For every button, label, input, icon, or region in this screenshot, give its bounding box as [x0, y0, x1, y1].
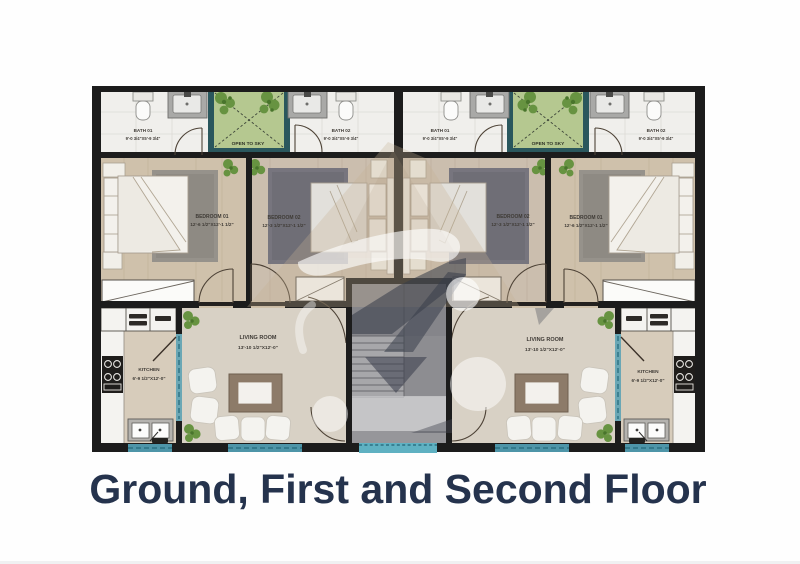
svg-text:BATH 02: BATH 02 [332, 128, 351, 133]
svg-text:6'-9 1/2"X12'-0": 6'-9 1/2"X12'-0" [631, 378, 664, 383]
svg-text:9'-0 3/4"X5'-9 3/4": 9'-0 3/4"X5'-9 3/4" [126, 136, 161, 141]
svg-text:OPEN TO SKY: OPEN TO SKY [532, 141, 565, 147]
svg-text:9'-0 3/4"X5'-9 3/4": 9'-0 3/4"X5'-9 3/4" [639, 136, 674, 141]
svg-text:LIVING ROOM: LIVING ROOM [240, 335, 277, 341]
svg-text:BATH 01: BATH 01 [134, 128, 153, 133]
svg-text:BEDROOM 01: BEDROOM 01 [569, 215, 602, 221]
svg-text:LIVING ROOM: LIVING ROOM [527, 337, 564, 343]
svg-text:12'-3 1/2"X12'-1 1/2": 12'-3 1/2"X12'-1 1/2" [491, 222, 534, 227]
svg-text:BEDROOM 02: BEDROOM 02 [267, 215, 300, 221]
svg-text:9'-0 3/4"X5'-9 3/4": 9'-0 3/4"X5'-9 3/4" [324, 136, 359, 141]
svg-text:6'-9 1/2"X12'-0": 6'-9 1/2"X12'-0" [132, 376, 165, 381]
svg-text:KITCHEN: KITCHEN [138, 367, 160, 373]
svg-text:13'-10 1/2"X12'-0": 13'-10 1/2"X12'-0" [525, 347, 565, 353]
svg-text:BEDROOM 01: BEDROOM 01 [195, 214, 228, 220]
svg-text:13'-10 1/2"X12'-0": 13'-10 1/2"X12'-0" [238, 345, 278, 351]
svg-text:12'-6 1/2"X12'-1 1/2": 12'-6 1/2"X12'-1 1/2" [190, 222, 233, 227]
svg-text:BEDROOM 02: BEDROOM 02 [496, 214, 529, 220]
svg-text:12'-6 1/2"X12'-1 1/2": 12'-6 1/2"X12'-1 1/2" [564, 223, 607, 228]
svg-text:KITCHEN: KITCHEN [637, 369, 659, 375]
svg-text:BATH 02: BATH 02 [647, 128, 666, 133]
svg-text:9'-0 3/4"X5'-9 3/4": 9'-0 3/4"X5'-9 3/4" [423, 136, 458, 141]
svg-text:OPEN TO SKY: OPEN TO SKY [232, 141, 265, 147]
svg-text:Ground, First and Second Floor: Ground, First and Second Floor [89, 466, 706, 512]
svg-text:12'-3 1/2"X12'-1 1/2": 12'-3 1/2"X12'-1 1/2" [262, 223, 305, 228]
svg-text:BATH 01: BATH 01 [431, 128, 450, 133]
